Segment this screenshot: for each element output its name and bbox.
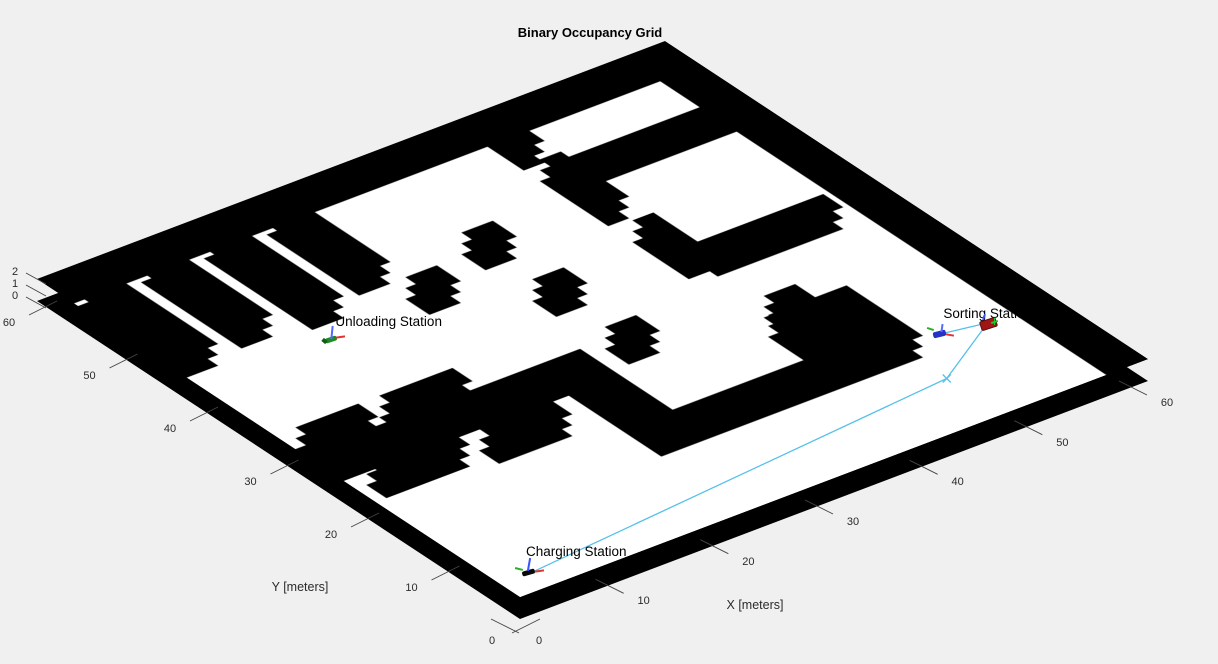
x-tick-label: 40 — [952, 476, 964, 488]
x-tick-label: 50 — [1056, 437, 1068, 449]
y-tick-mark — [512, 619, 540, 633]
y-tick-label: 60 — [3, 317, 15, 329]
unloading-station-label: Unloading Station — [335, 314, 442, 329]
figure-window: Binary Occupancy Grid X [meters] Y [mete… — [0, 0, 1218, 664]
y-tick-label: 0 — [489, 635, 495, 647]
z-tick-label: 2 — [12, 266, 18, 278]
y-tick-label: 20 — [325, 529, 337, 541]
x-tick-label: 20 — [742, 556, 754, 568]
z-tick-mark — [26, 285, 46, 296]
y-tick-label: 30 — [244, 476, 256, 488]
y-tick-label: 40 — [164, 423, 176, 435]
y-axis-label: Y [meters] — [230, 580, 370, 594]
y-tick-label: 10 — [405, 582, 417, 594]
x-tick-label: 30 — [847, 516, 859, 528]
x-tick-label: 10 — [638, 595, 650, 607]
x-tick-label: 60 — [1161, 397, 1173, 409]
plot-title: Binary Occupancy Grid — [440, 25, 740, 40]
charging-station-label: Charging Station — [526, 544, 627, 559]
z-tick-label: 0 — [12, 290, 18, 302]
z-tick-label: 1 — [12, 278, 18, 290]
x-tick-mark — [491, 619, 519, 633]
x-axis-label: X [meters] — [685, 598, 825, 612]
x-tick-label: 0 — [536, 635, 542, 647]
y-tick-label: 50 — [83, 370, 95, 382]
